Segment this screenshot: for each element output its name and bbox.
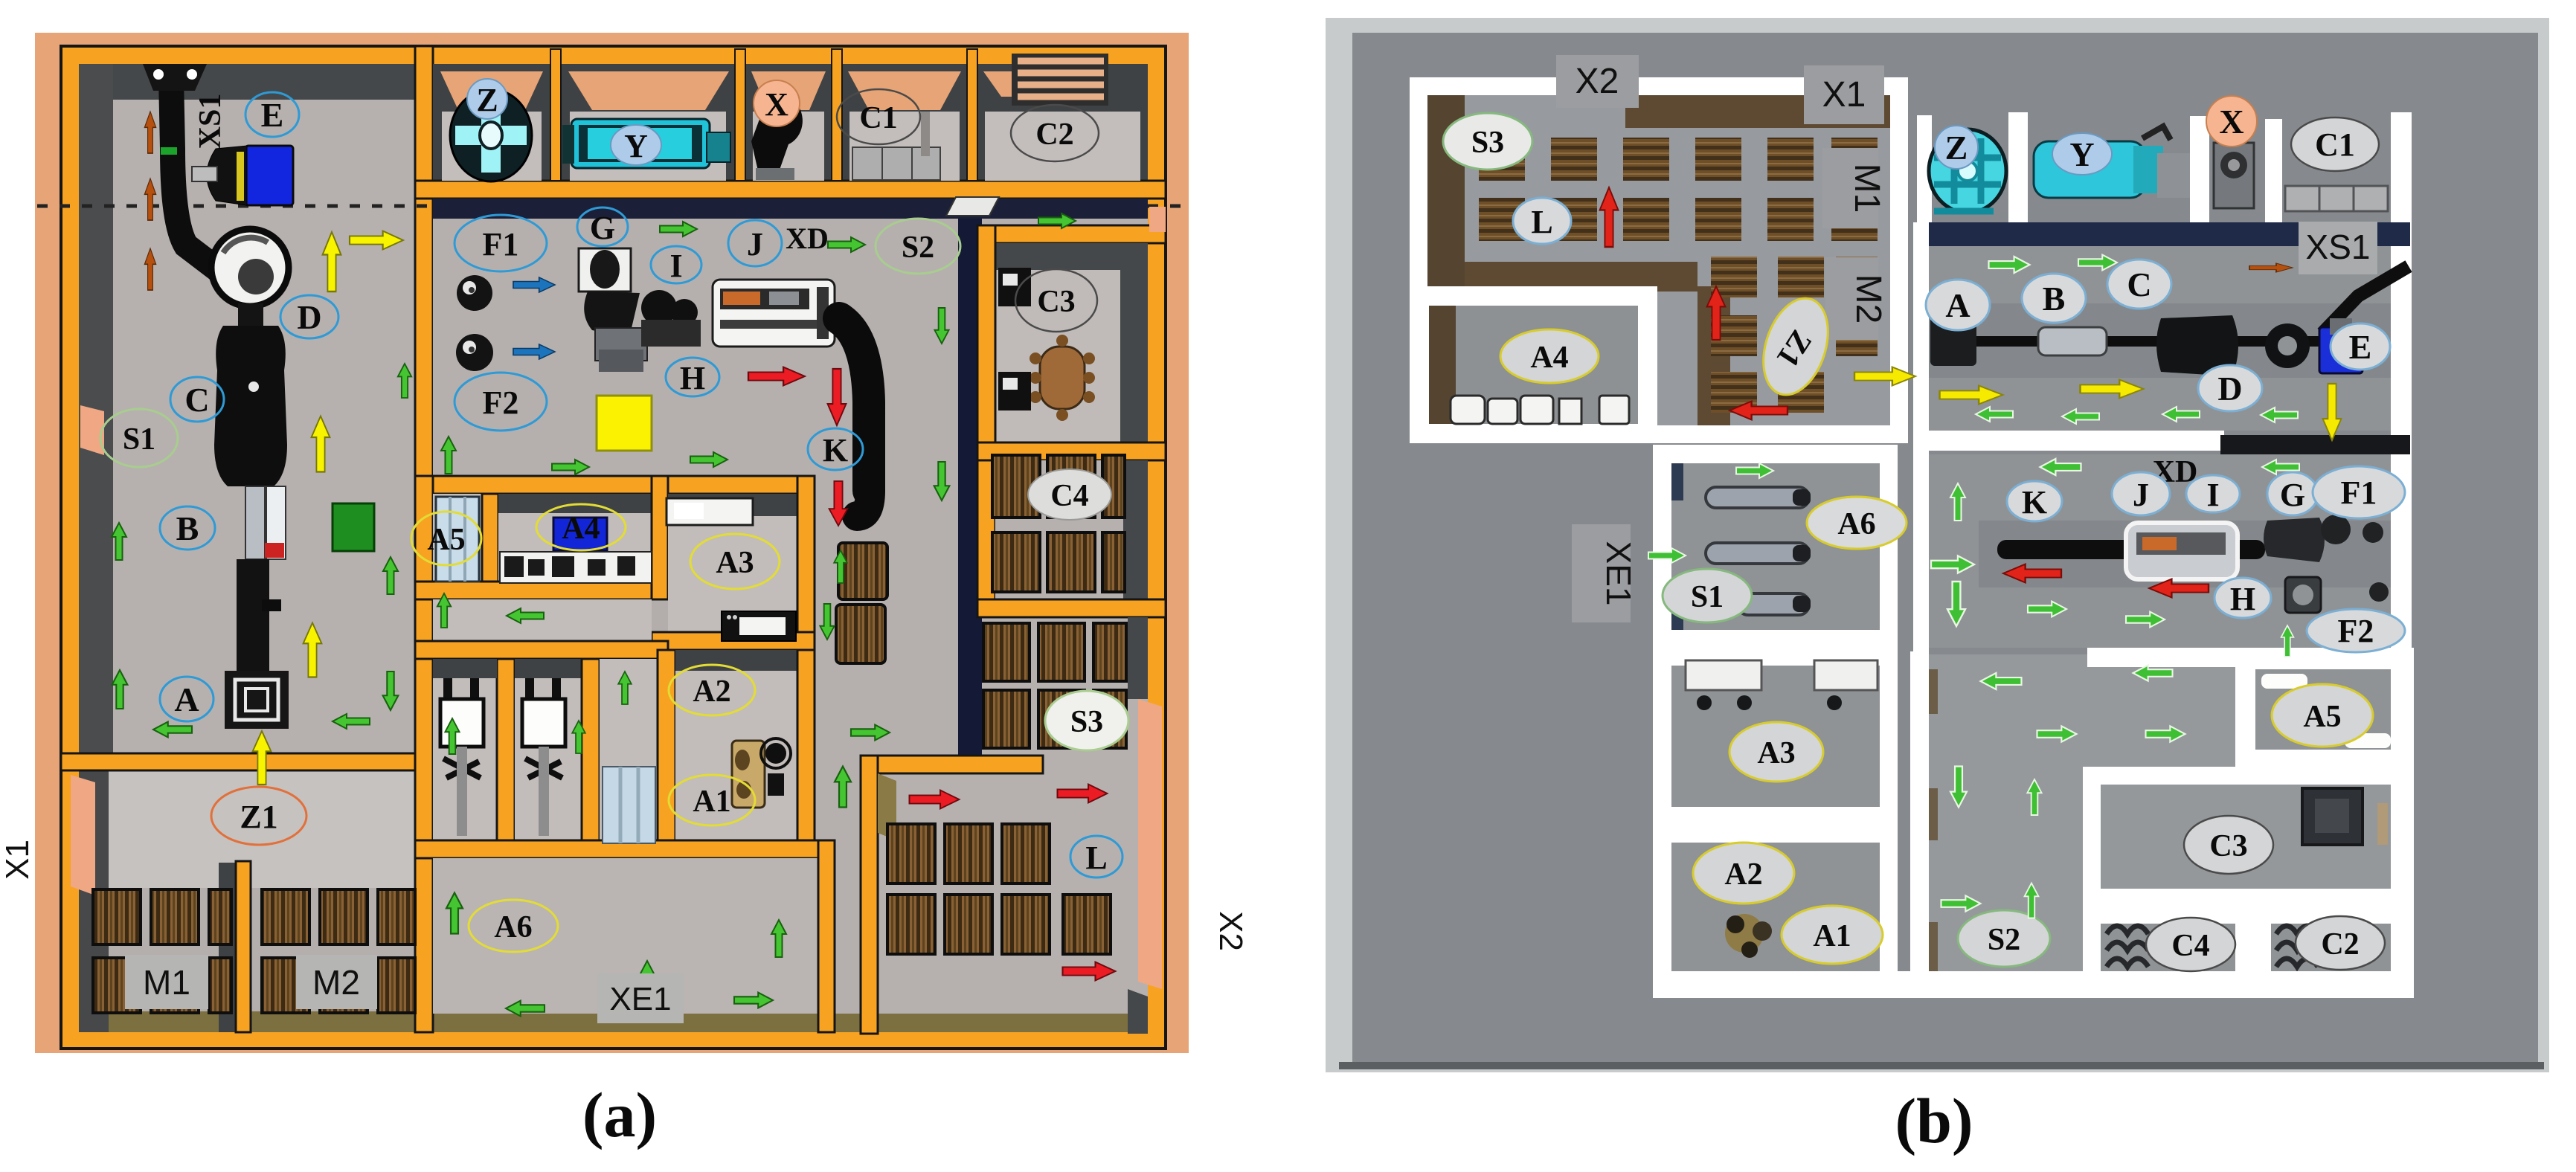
svg-text:B: B [2043,280,2066,318]
svg-text:(b): (b) [1895,1085,1973,1156]
svg-text:C2: C2 [2321,927,2359,962]
svg-text:A3: A3 [716,546,754,580]
svg-text:A5: A5 [427,523,465,557]
svg-text:Y: Y [624,128,648,164]
svg-text:S1: S1 [1691,580,1724,614]
svg-text:Z: Z [476,82,498,118]
svg-text:Y: Y [2069,135,2094,173]
svg-text:H: H [680,360,705,396]
svg-text:F2: F2 [483,384,519,421]
svg-text:G: G [590,210,615,246]
svg-text:M2: M2 [312,963,360,1002]
svg-text:A6: A6 [1837,507,1875,541]
svg-text:A1: A1 [1813,919,1851,953]
svg-text:F1: F1 [483,226,519,263]
svg-text:S2: S2 [1988,923,2020,957]
svg-text:A3: A3 [1757,736,1795,770]
svg-text:C: C [2127,265,2151,303]
svg-text:A2: A2 [1724,857,1762,892]
svg-text:K: K [823,432,848,469]
svg-text:X1: X1 [0,840,36,880]
svg-text:A5: A5 [2303,700,2341,734]
svg-text:S3: S3 [1070,705,1103,739]
svg-text:E: E [261,96,284,134]
svg-text:A2: A2 [693,674,730,709]
svg-text:B: B [176,509,199,547]
svg-text:J: J [2133,477,2149,513]
svg-text:A: A [174,680,199,718]
svg-text:S2: S2 [902,231,934,265]
svg-text:C2: C2 [1035,117,1073,152]
svg-text:C4: C4 [1050,479,1088,513]
svg-text:I: I [2206,477,2219,513]
svg-text:XE1: XE1 [609,981,671,1017]
svg-text:F2: F2 [2338,613,2374,649]
svg-text:A: A [1945,286,1970,324]
svg-text:C3: C3 [1037,285,1075,319]
svg-text:D: D [297,298,321,336]
svg-text:L: L [1085,840,1107,876]
svg-text:F1: F1 [2341,474,2377,511]
svg-text:XE1: XE1 [1599,541,1638,606]
svg-text:S1: S1 [123,422,155,457]
svg-text:C1: C1 [859,101,897,135]
svg-text:X2: X2 [1576,62,1619,101]
svg-text:D: D [2217,370,2242,408]
svg-text:X: X [2219,103,2243,141]
svg-text:XD: XD [786,222,829,255]
svg-text:S3: S3 [1471,126,1504,160]
svg-text:M1: M1 [1847,164,1886,213]
svg-text:K: K [2022,484,2047,521]
svg-text:C4: C4 [2171,929,2209,963]
svg-text:X2: X2 [1212,911,1249,951]
svg-text:A1: A1 [693,785,730,819]
svg-text:X: X [765,86,788,123]
svg-text:C: C [184,381,209,419]
svg-text:(a): (a) [582,1079,657,1150]
svg-text:L: L [1531,204,1552,240]
svg-text:H: H [2230,581,2255,617]
svg-text:E: E [2349,328,2372,366]
svg-text:A4: A4 [562,512,600,546]
svg-text:I: I [669,248,682,284]
svg-text:C3: C3 [2209,829,2247,863]
svg-text:M1: M1 [143,963,190,1002]
svg-text:X1: X1 [1822,75,1866,115]
svg-text:Z: Z [1945,129,1968,167]
svg-text:M2: M2 [1849,274,1888,324]
svg-text:G: G [2280,477,2305,513]
svg-text:C1: C1 [2315,126,2355,163]
svg-text:Z1: Z1 [240,799,277,835]
svg-text:A4: A4 [1530,341,1568,375]
svg-text:J: J [747,226,763,263]
svg-text:XS1: XS1 [193,94,228,149]
svg-text:A6: A6 [494,910,532,944]
svg-text:XS1: XS1 [2306,228,2371,266]
